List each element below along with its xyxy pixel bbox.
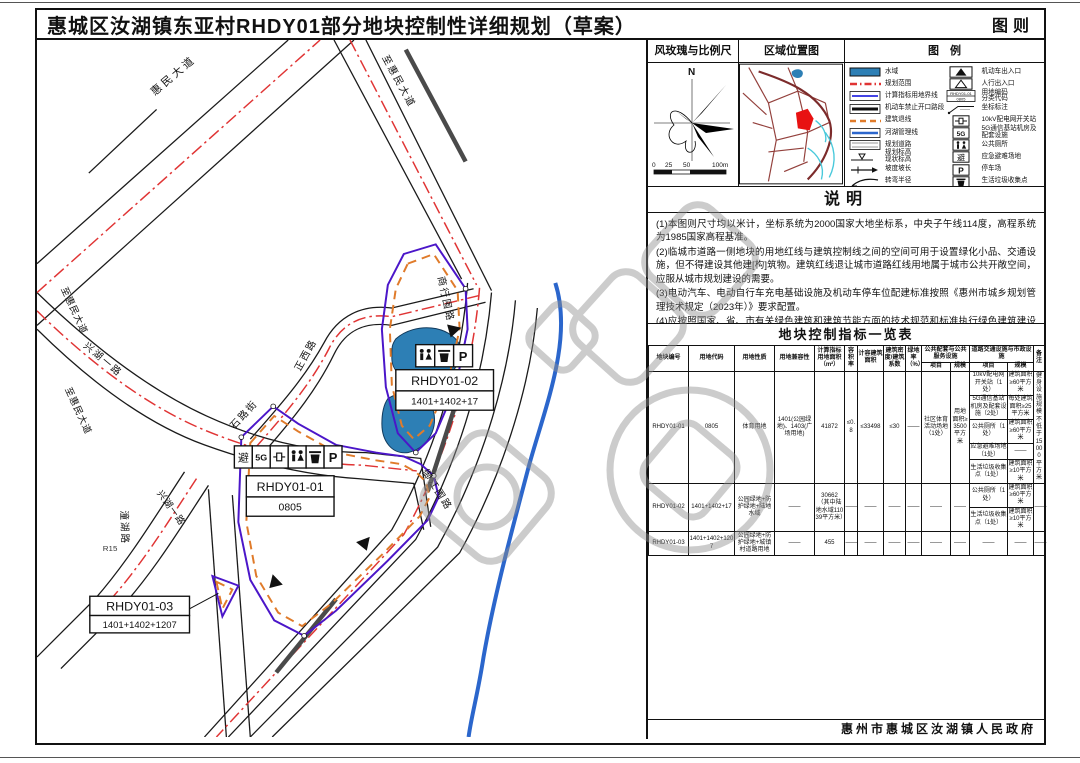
svg-text:0: 0 bbox=[652, 162, 656, 169]
pedestrian-entrance-swatch bbox=[946, 78, 982, 90]
table-row: RHDY01-01 0805 体育用地 1401(公园绿地)、1403(广场用地… bbox=[649, 371, 1045, 395]
cell: 公园绿地+防护绿地+陆地水域 bbox=[735, 484, 775, 532]
svg-text:石路街: 石路街 bbox=[227, 397, 261, 431]
cell: ≤30 bbox=[884, 371, 906, 483]
col-parcel-no: 地块编号 bbox=[649, 346, 689, 372]
location-map-cell: 区域位置图 bbox=[738, 40, 844, 186]
svg-text:25: 25 bbox=[665, 162, 673, 169]
cell: 1401+1402+1207 bbox=[689, 532, 735, 556]
cell: 建筑面积≥60平方米 bbox=[1008, 419, 1034, 443]
river-line bbox=[469, 283, 562, 737]
cell: —— bbox=[970, 532, 1008, 556]
cell: 10kV配电网开关站（1处） bbox=[970, 371, 1008, 395]
windrose-petals bbox=[676, 85, 734, 157]
svg-text:潼湖路: 潼湖路 bbox=[118, 510, 132, 545]
cell: —— bbox=[922, 484, 951, 532]
cell: RHDY01-03 bbox=[649, 532, 689, 556]
cell: —— bbox=[1034, 532, 1045, 556]
parking-swatch: P bbox=[946, 164, 982, 176]
cell: 公共厕所（1处） bbox=[970, 419, 1008, 443]
water-swatch bbox=[849, 66, 885, 78]
col-land-use: 用地性质 bbox=[735, 346, 775, 372]
svg-text:1401+1402+17: 1401+1402+17 bbox=[411, 397, 478, 408]
5g-icon: 5G bbox=[255, 452, 267, 462]
side-panel: 风玫瑰与比例尺 N bbox=[648, 40, 1044, 739]
elevation-swatch bbox=[849, 151, 885, 163]
cell: —— bbox=[775, 484, 815, 532]
cell: 5G通信基站机房及配套设施（2处） bbox=[970, 395, 1008, 419]
page-title: 惠城区汝湖镇东亚村RHDY01部分地块控制性详细规划（草案） bbox=[47, 10, 636, 39]
5g-room-swatch: 5G bbox=[946, 127, 982, 139]
svg-text:0805: 0805 bbox=[956, 97, 966, 102]
note-item: (4)应按照国家、省、市有关绿色建筑和建筑节能方面的技术规范和标准执行绿色建筑建… bbox=[656, 315, 1036, 323]
col-muni-scale: 规模 bbox=[1008, 362, 1034, 371]
cell: 社区体育活动场地（1处） bbox=[922, 371, 951, 483]
windrose-cell: 风玫瑰与比例尺 N bbox=[648, 40, 738, 186]
shelter-icon: 避 bbox=[238, 451, 249, 464]
note-item: (2)临城市道路一侧地块的用地红线与建筑控制线之间的空间可用于设置绿化小品、交通… bbox=[656, 246, 1036, 286]
svg-text:避: 避 bbox=[957, 153, 965, 163]
cell: 用地面积≥3500平方米 bbox=[951, 371, 970, 483]
cell: —— bbox=[775, 532, 815, 556]
cell: 每处建筑面积≥25平方米 bbox=[1008, 395, 1034, 419]
col-pub-scale: 规模 bbox=[951, 362, 970, 371]
cell: —— bbox=[922, 532, 951, 556]
svg-text:100m: 100m bbox=[712, 162, 728, 169]
coordinate-swatch bbox=[946, 103, 982, 115]
cell: —— bbox=[906, 484, 922, 532]
legend-item: 规划标高 现状标高 bbox=[849, 151, 946, 163]
col-far: 容积率 bbox=[845, 346, 858, 372]
col-pub-item: 项目 bbox=[922, 362, 951, 371]
notes-title: 说明 bbox=[648, 187, 1044, 213]
cell: 建筑面积≥10平方米 bbox=[1008, 460, 1034, 484]
river-line-swatch bbox=[849, 127, 885, 139]
col-gfa: 计容建筑面积 bbox=[858, 346, 884, 372]
cell: 生活垃圾收集点（1处） bbox=[970, 460, 1008, 484]
legend-item: 坐标标注 bbox=[946, 103, 1043, 115]
parcel01-label: RHDY01-01 0805 bbox=[246, 476, 334, 516]
shelter-swatch: 避 bbox=[946, 151, 982, 163]
col-land-code: 用地代码 bbox=[689, 346, 735, 372]
trash-point-swatch bbox=[946, 176, 982, 186]
col-public-fac: 公共配套与公共服务设施 bbox=[922, 346, 970, 363]
cell: 公共厕所（1处） bbox=[970, 484, 1008, 508]
plan-sheet: 惠城区汝湖镇东亚村RHDY01部分地块控制性详细规划（草案） 图则 bbox=[35, 8, 1046, 745]
cell: —— bbox=[951, 532, 970, 556]
legend-item: 计算指标用地界线 bbox=[849, 90, 946, 102]
sheet-type-label: 图则 bbox=[992, 12, 1034, 36]
col-area: 计算指标用地面积（m²） bbox=[815, 346, 845, 372]
svg-text:RHDY01-03: RHDY01-03 bbox=[106, 600, 173, 614]
svg-text:兴湖一路: 兴湖一路 bbox=[81, 339, 126, 379]
parcel02-label: RHDY01-02 1401+1402+17 bbox=[396, 370, 494, 410]
svg-text:商行围路: 商行围路 bbox=[435, 275, 458, 323]
svg-text:P: P bbox=[958, 165, 964, 175]
turn-radius-swatch bbox=[849, 176, 885, 186]
cell: —— bbox=[845, 532, 858, 556]
cell: —— bbox=[906, 532, 922, 556]
svg-text:兴湖一路: 兴湖一路 bbox=[155, 488, 188, 527]
parking-icon: P bbox=[329, 450, 338, 465]
svg-text:5G: 5G bbox=[956, 131, 965, 138]
government-signature: 惠州市惠城区汝湖镇人民政府 bbox=[648, 719, 1044, 739]
svg-text:0805: 0805 bbox=[279, 503, 303, 514]
parcel-boundaries bbox=[212, 244, 467, 635]
scale-bar: 0 25 50 100m bbox=[652, 162, 728, 174]
cell: 建筑面积≥10平方米 bbox=[1008, 508, 1034, 532]
cell: ≤0.8 bbox=[845, 371, 858, 483]
note-item: (3)电动汽车、电动自行车充电基础设施及机动车停车位配建标准按照《惠州市城乡规划… bbox=[656, 287, 1036, 314]
cell: 455 bbox=[815, 532, 845, 556]
parcel-code-swatch: RHDY01-010805 bbox=[946, 90, 982, 102]
main-map-svg: 避 5G P RHDY01-01 0805 bbox=[37, 40, 648, 737]
legend-left-column: 水域 规划范围 计算指标用地界线 机动车禁止开口路段 bbox=[849, 66, 946, 186]
legend-item: 机动车出入口 bbox=[946, 66, 1043, 78]
legend-item: RHDY01-010805 用地编码 分类代码 bbox=[946, 90, 1043, 102]
bottom-hairline bbox=[0, 757, 1080, 758]
blank-area bbox=[648, 556, 1044, 719]
toilet-swatch bbox=[946, 139, 982, 151]
note-item: (1)本图则尺寸均以米计，坐标系统为2000国家大地坐标系，中央子午线114度，… bbox=[656, 218, 1036, 245]
legend-item: 公共厕所 bbox=[946, 139, 1043, 151]
legend-item: 规划范围 bbox=[849, 78, 946, 90]
windrose: N 0 25 bbox=[648, 63, 736, 185]
title-bar: 惠城区汝湖镇东亚村RHDY01部分地块控制性详细规划（草案） 图则 bbox=[37, 10, 1044, 40]
legend-item: 5G 5G通信基站机房及 配套设施 bbox=[946, 127, 1043, 139]
svg-text:N: N bbox=[688, 67, 695, 78]
cell: —— bbox=[951, 484, 970, 532]
table-title: 地块控制指标一览表 bbox=[648, 324, 1044, 345]
cell: 建筑面积≥60平方米 bbox=[1008, 371, 1034, 395]
col-compat: 用地兼容性 bbox=[775, 346, 815, 372]
table-row: RHDY01-02 1401+1402+17 公园绿地+防护绿地+陆地水域 ——… bbox=[649, 484, 1045, 508]
col-green: 绿地率（%） bbox=[906, 346, 922, 372]
cell: 41872 bbox=[815, 371, 845, 483]
parking-icon: P bbox=[459, 349, 468, 364]
no-opening-swatch bbox=[849, 103, 885, 115]
cell: —— bbox=[1034, 484, 1045, 532]
planned-road-swatch bbox=[849, 139, 885, 151]
location-map bbox=[739, 63, 843, 185]
col-muni-fac: 道路交通设施与市政设施 bbox=[970, 346, 1034, 363]
cell: 1401+1402+17 bbox=[689, 484, 735, 532]
svg-text:R15: R15 bbox=[103, 544, 118, 553]
cell: 生活垃圾收集点（1处） bbox=[970, 508, 1008, 532]
parcel03-label: RHDY01-03 1401+1402+1207 bbox=[90, 593, 219, 633]
cell: 0805 bbox=[689, 371, 735, 483]
top-hairline bbox=[0, 2, 1080, 3]
cell: 体育用地 bbox=[735, 371, 775, 483]
cell: 1401(公园绿地)、1403(广场用地) bbox=[775, 371, 815, 483]
cell: 建筑面积≥60平方米 bbox=[1008, 484, 1034, 508]
cell: 30662（其中陆地水域11039平方米） bbox=[815, 484, 845, 532]
svg-text:RHDY01-01: RHDY01-01 bbox=[257, 480, 324, 494]
switch-station-swatch bbox=[946, 115, 982, 127]
notes-section: 说明 (1)本图则尺寸均以米计，坐标系统为2000国家大地坐标系，中央子午线11… bbox=[648, 187, 1044, 324]
planning-boundary-swatch bbox=[849, 78, 885, 90]
cell: 公园绿地+防护绿地+城镇村道路用地 bbox=[735, 532, 775, 556]
cell: —— bbox=[884, 532, 906, 556]
legend-item: 转弯半径 bbox=[849, 176, 946, 186]
setback-swatch bbox=[849, 115, 885, 127]
cell: —— bbox=[1008, 443, 1034, 460]
table-row: RHDY01-03 1401+1402+1207 公园绿地+防护绿地+城镇村道路… bbox=[649, 532, 1045, 556]
legend-item: 避 应急避难场地 bbox=[946, 151, 1043, 163]
legend-item: 水域 bbox=[849, 66, 946, 78]
cell: RHDY01-02 bbox=[649, 484, 689, 532]
svg-text:RHDY01-02: RHDY01-02 bbox=[411, 374, 478, 388]
legend-item: 河湖管理线 bbox=[849, 127, 946, 139]
cell: —— bbox=[845, 484, 858, 532]
svg-text:正西路: 正西路 bbox=[291, 336, 320, 373]
cell: —— bbox=[858, 484, 884, 532]
svg-text:至惠民大道: 至惠民大道 bbox=[63, 385, 94, 436]
cell: RHDY01-01 bbox=[649, 371, 689, 483]
indicator-boundary-swatch bbox=[849, 90, 885, 102]
col-muni-item: 项目 bbox=[970, 362, 1008, 371]
col-remark: 备注 bbox=[1034, 346, 1045, 372]
cell: 应急避难场地（1处） bbox=[970, 443, 1008, 460]
svg-text:50: 50 bbox=[683, 162, 691, 169]
vehicle-entrance-swatch bbox=[946, 66, 982, 78]
legend-item: 建筑退线 bbox=[849, 115, 946, 127]
cell: —— bbox=[884, 484, 906, 532]
legend-item: 生活垃圾收集点 bbox=[946, 176, 1043, 186]
legend-item: 机动车禁止开口路段 bbox=[849, 103, 946, 115]
windrose-title: 风玫瑰与比例尺 bbox=[648, 40, 738, 63]
col-density: 建筑密度/建筑系数 bbox=[884, 346, 906, 372]
cell: 健身设施规模不低于15000平方米 bbox=[1034, 371, 1045, 483]
location-map-title: 区域位置图 bbox=[739, 40, 844, 63]
legend-title: 图 例 bbox=[845, 40, 1044, 63]
parcel01-icon-strip bbox=[234, 446, 342, 468]
legend-item: P 停车场 bbox=[946, 164, 1043, 176]
svg-text:惠民大道: 惠民大道 bbox=[148, 53, 199, 98]
cell: ≤33498 bbox=[858, 371, 884, 483]
legend-cell: 图 例 水域 规划范围 bbox=[844, 40, 1044, 186]
notes-body: (1)本图则尺寸均以米计，坐标系统为2000国家大地坐标系，中央子午线114度，… bbox=[648, 213, 1044, 323]
legend-right-column: 机动车出入口 人行出入口 RHDY01-010805 用地编码 分类代码 坐标 bbox=[946, 66, 1043, 186]
svg-text:1401+1402+1207: 1401+1402+1207 bbox=[103, 620, 177, 630]
slope-swatch bbox=[849, 164, 885, 176]
main-map-panel: 避 5G P RHDY01-01 0805 bbox=[37, 40, 648, 739]
cell: —— bbox=[1008, 532, 1034, 556]
control-indicators-table: 地块编号 用地代码 用地性质 用地兼容性 计算指标用地面积（m²） 容积率 计容… bbox=[648, 345, 1045, 556]
cell: —— bbox=[858, 532, 884, 556]
svg-text:RHDY01-01: RHDY01-01 bbox=[950, 91, 972, 96]
table-header-row: 地块编号 用地代码 用地性质 用地兼容性 计算指标用地面积（m²） 容积率 计容… bbox=[649, 346, 1045, 363]
legend-item: 坡度坡长 bbox=[849, 164, 946, 176]
cell: —— bbox=[906, 371, 922, 483]
